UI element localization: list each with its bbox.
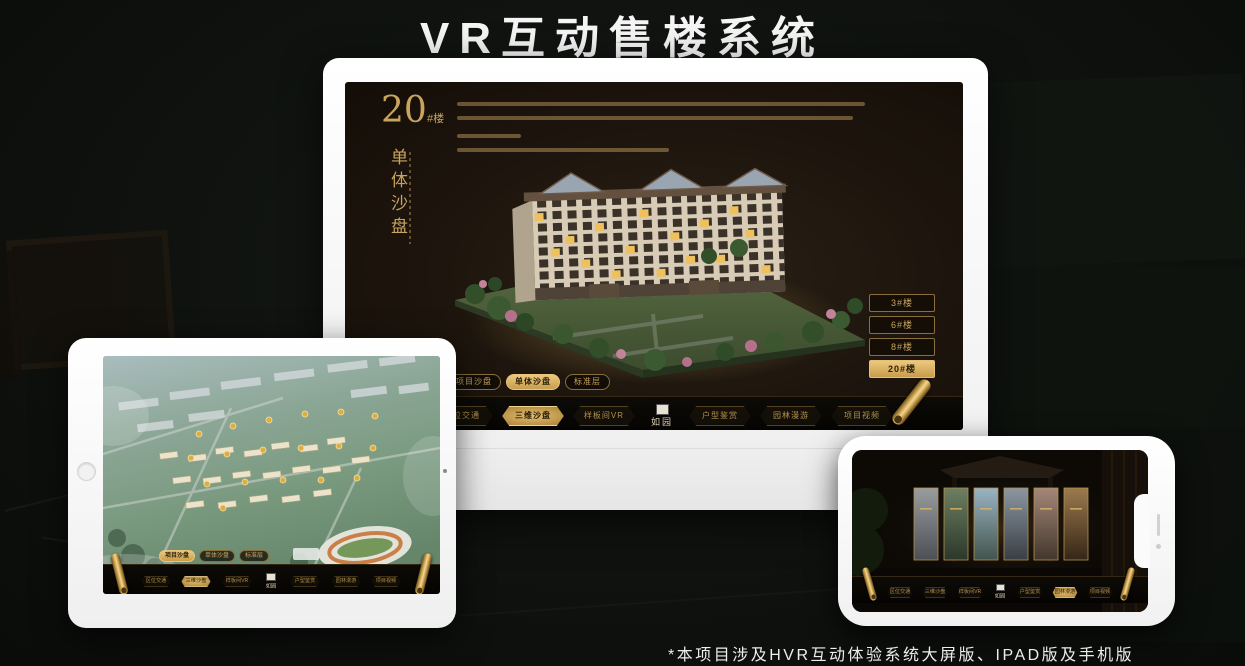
tab-single-sandbox[interactable]: 单体沙盘 xyxy=(506,374,560,390)
tablet-menu-unit-gallery[interactable]: 户型鉴赏 xyxy=(289,576,321,587)
phone-screen: 区位交通 三维沙盘 样板间VR 如园 户型鉴赏 园林漫游 项目视频 xyxy=(852,450,1148,612)
description-line xyxy=(457,102,865,106)
tablet-tab-single-sandbox[interactable]: 单体沙盘 xyxy=(199,550,235,562)
tablet-brand-logo: 如园 xyxy=(258,573,284,590)
tablet-menu-3d-sandbox[interactable]: 三维沙盘 xyxy=(180,576,212,587)
menu-item-3d-sandbox[interactable]: 三维沙盘 xyxy=(498,406,568,426)
phone-menu-project-video[interactable]: 项目视频 xyxy=(1086,586,1113,597)
floor-button-6[interactable]: 6#楼 xyxy=(869,316,935,334)
phone-brand-logo: 如园 xyxy=(989,584,1011,600)
tablet-tab-standard-floor[interactable]: 标准层 xyxy=(239,550,269,562)
page-title: VR互动售楼系统 xyxy=(0,2,1245,66)
footnote-text: *本项目涉及HVR互动体验系统大屏版、IPAD版及手机版 xyxy=(668,641,1134,665)
tablet-menu-project-video[interactable]: 项目视频 xyxy=(370,576,402,587)
seal-icon xyxy=(996,584,1005,591)
bg-photo-right-mid xyxy=(992,268,1245,428)
building-number: 20 xyxy=(381,90,427,131)
camera-icon xyxy=(1156,544,1161,549)
floor-button-20[interactable]: 20#楼 xyxy=(869,360,935,378)
bg-map-line xyxy=(460,585,879,616)
phone-menu-garden-roam[interactable]: 园林漫游 xyxy=(1051,586,1078,597)
seal-icon xyxy=(266,573,276,581)
menu-item-project-video[interactable]: 项目视频 xyxy=(827,406,897,426)
tab-standard-floor[interactable]: 标准层 xyxy=(565,374,610,390)
menu-item-showroom-vr[interactable]: 样板间VR xyxy=(569,406,639,426)
phone-notch xyxy=(1134,494,1150,568)
building-unit: #楼 xyxy=(427,110,444,126)
aerial-masterplan[interactable] xyxy=(103,356,440,594)
floor-button-8[interactable]: 8#楼 xyxy=(869,338,935,356)
tablet-tab-project-sandbox[interactable]: 项目沙盘 xyxy=(159,550,195,562)
phone-device: 区位交通 三维沙盘 样板间VR 如园 户型鉴赏 园林漫游 项目视频 xyxy=(838,436,1175,626)
description-line xyxy=(457,116,853,120)
map-tooltip xyxy=(293,548,319,560)
tablet-menu-location-traffic[interactable]: 区位交通 xyxy=(140,576,172,587)
tablet-screen: 项目沙盘 单体沙盘 标准层 区位交通 三维沙盘 样板间VR 如园 户型鉴赏 园林… xyxy=(103,356,440,594)
brand-logo: 如园 xyxy=(640,404,684,428)
camera-icon xyxy=(443,469,447,473)
scroll-icon[interactable] xyxy=(890,377,933,428)
home-button[interactable] xyxy=(77,462,96,481)
menu-item-garden-roam[interactable]: 园林漫游 xyxy=(756,406,826,426)
floor-button-3[interactable]: 3#楼 xyxy=(869,294,935,312)
phone-menu-unit-gallery[interactable]: 户型鉴赏 xyxy=(1016,586,1043,597)
promo-canvas: VR互动售楼系统 20 #楼 单体沙盘 xyxy=(0,0,1245,666)
phone-menu-location-traffic[interactable]: 区位交通 xyxy=(886,586,913,597)
phone-menu-showroom-vr[interactable]: 样板间VR xyxy=(956,586,983,597)
tablet-device: 项目沙盘 单体沙盘 标准层 区位交通 三维沙盘 样板间VR 如园 户型鉴赏 园林… xyxy=(68,338,456,628)
tablet-menu-showroom-vr[interactable]: 样板间VR xyxy=(221,576,253,587)
phone-menu-3d-sandbox[interactable]: 三维沙盘 xyxy=(921,586,948,597)
building-model[interactable] xyxy=(403,134,883,402)
menu-item-unit-gallery[interactable]: 户型鉴赏 xyxy=(685,406,755,426)
seal-icon xyxy=(656,404,669,415)
tablet-menu-garden-roam[interactable]: 园林漫游 xyxy=(329,576,361,587)
bg-photo-right-top xyxy=(985,74,1245,268)
phone-menu-bar: 区位交通 三维沙盘 样板间VR 如园 户型鉴赏 园林漫游 项目视频 xyxy=(852,576,1148,603)
speaker-icon xyxy=(1157,514,1160,536)
tablet-menu-bar: 区位交通 三维沙盘 样板间VR 如园 户型鉴赏 园林漫游 项目视频 xyxy=(103,564,440,594)
